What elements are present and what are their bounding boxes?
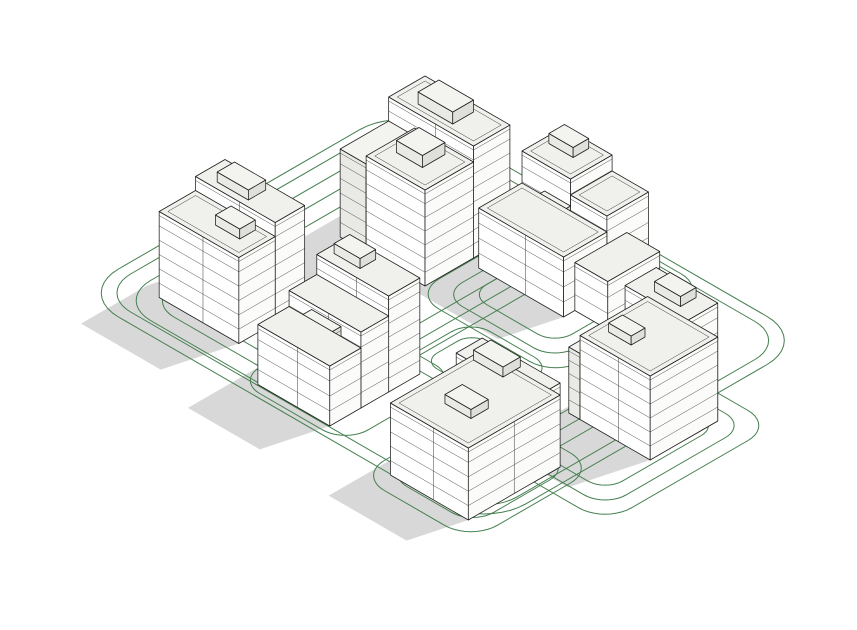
facade-southwest — [569, 347, 580, 420]
application-canvas — [0, 0, 857, 630]
model-viewport — [0, 0, 857, 630]
facade-southeast — [389, 278, 420, 392]
isometric-scene — [0, 0, 857, 630]
